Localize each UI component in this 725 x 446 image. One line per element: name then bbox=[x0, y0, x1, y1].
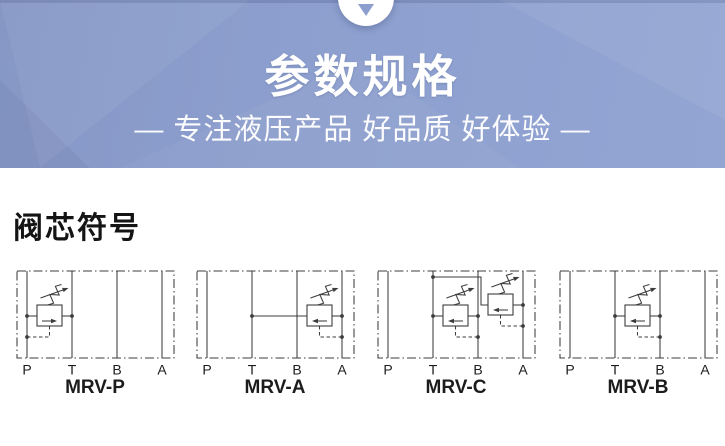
port-label-p: P bbox=[22, 362, 31, 378]
port-label-a: A bbox=[700, 362, 710, 378]
valve-diagram-4: PTBAMRV-B bbox=[558, 269, 720, 399]
diagram-name: MRV-C bbox=[426, 377, 487, 398]
valve-symbol-mrv-b: PTBAMRV-B bbox=[558, 269, 720, 399]
valve-symbol-mrv-p: PTBAMRV-P bbox=[15, 269, 177, 399]
port-label-b: B bbox=[292, 362, 301, 378]
valve-diagram-1: PTBAMRV-P bbox=[15, 269, 177, 399]
diagram-name: MRV-P bbox=[65, 377, 125, 398]
port-label-a: A bbox=[518, 362, 528, 378]
port-label-p: P bbox=[202, 362, 211, 378]
valve-diagram-2: PTBAMRV-A bbox=[195, 269, 357, 399]
port-label-t: T bbox=[68, 362, 77, 378]
port-label-p: P bbox=[565, 362, 574, 378]
valve-symbol-mrv-c: PTBAMRV-C bbox=[376, 269, 538, 399]
port-label-t: T bbox=[611, 362, 620, 378]
banner: 参数规格 — 专注液压产品 好品质 好体验 — bbox=[0, 0, 725, 168]
valve-diagram-3: PTBAMRV-C bbox=[376, 269, 538, 399]
chevron-down-icon bbox=[358, 4, 374, 16]
port-label-b: B bbox=[473, 362, 482, 378]
banner-subtitle: — 专注液压产品 好品质 好体验 — bbox=[0, 106, 725, 148]
section-heading: 阀芯符号 bbox=[13, 203, 141, 247]
port-label-b: B bbox=[655, 362, 664, 378]
port-label-a: A bbox=[337, 362, 347, 378]
port-label-t: T bbox=[429, 362, 438, 378]
diagram-name: MRV-A bbox=[245, 377, 306, 398]
port-label-t: T bbox=[248, 362, 257, 378]
diagram-name: MRV-B bbox=[608, 377, 669, 398]
banner-title: 参数规格 bbox=[0, 40, 725, 105]
port-label-a: A bbox=[157, 362, 167, 378]
port-label-p: P bbox=[383, 362, 392, 378]
port-label-b: B bbox=[112, 362, 121, 378]
valve-symbol-mrv-a: PTBAMRV-A bbox=[195, 269, 357, 399]
